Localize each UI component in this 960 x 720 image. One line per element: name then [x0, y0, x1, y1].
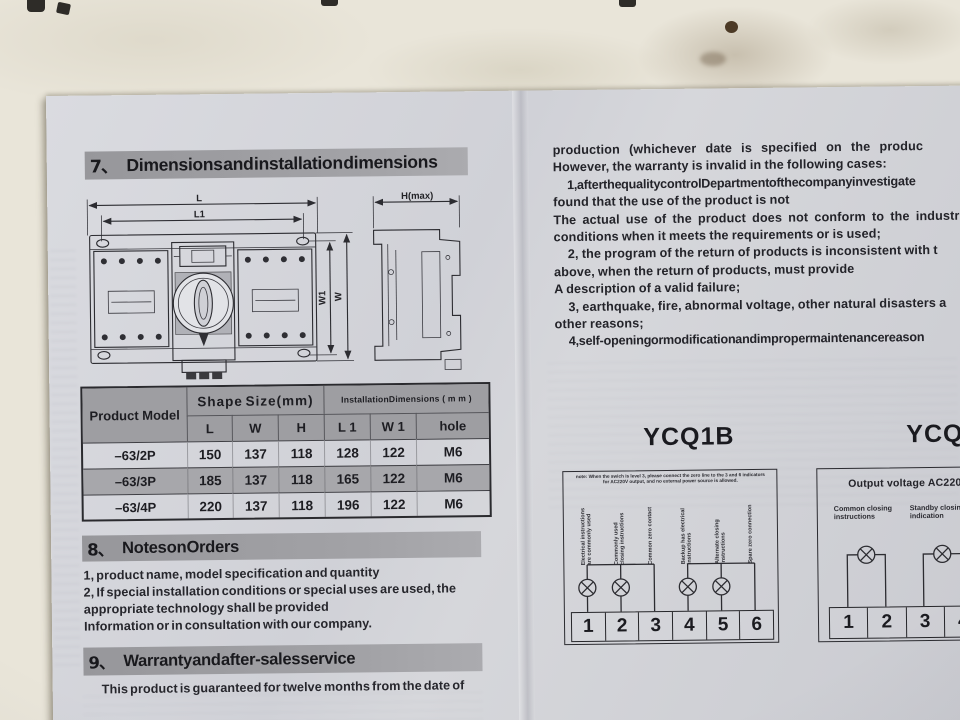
terminal-label: Electrical instructions are commonly use…	[580, 505, 594, 565]
terminal-number: 4	[672, 612, 706, 640]
table-cell: 185	[187, 467, 232, 494]
table-cell: 128	[324, 439, 370, 466]
table-cell: 122	[370, 439, 416, 466]
terminal-number: 5	[706, 611, 740, 639]
table-surface-stain	[700, 52, 726, 66]
terminal-number: 4	[944, 606, 960, 636]
manual-booklet: 7、 Dimensions and installation dimension…	[46, 85, 960, 720]
table-cell: 150	[187, 441, 232, 468]
section7-heading: 7、 Dimensions and installation dimension…	[85, 147, 468, 179]
terminal-number: 2	[605, 612, 639, 640]
terminal-number: 1	[572, 613, 605, 641]
section8-heading: 8、 Notes on Orders	[82, 531, 481, 562]
table-cell: 196	[325, 491, 371, 517]
manual-photo: 7、 Dimensions and installation dimension…	[0, 0, 960, 720]
terminal-number: 3	[905, 607, 944, 637]
left-page: 7、 Dimensions and installation dimension…	[46, 91, 523, 720]
table-surface-mark	[619, 0, 636, 7]
terminal-number: 1	[830, 608, 868, 638]
th-col-L: L	[187, 415, 232, 442]
ycq3b-wiring-diagram: Output voltage AC220V Common closing ins…	[816, 466, 960, 642]
side-view: H(max)	[373, 190, 461, 370]
lamp-icon	[579, 579, 596, 596]
terminal-label: Backup has electrical instructions	[680, 504, 694, 564]
table-cell: 137	[232, 440, 278, 467]
lamp-icon	[713, 578, 730, 595]
dim-label-W: W	[333, 292, 344, 301]
ycq3b-terminal-row: 1 2 3 4	[829, 605, 960, 639]
table-row-model: –63/3P	[83, 467, 187, 494]
warranty-paragraph: production (whichever date is specified …	[553, 137, 960, 351]
th-shape-size: Shape Size(mm)	[186, 386, 323, 416]
section8-text: 1, product name, model specification and…	[83, 563, 456, 635]
ycq1b-wiring-diagram: note: When the swich is level 3, please …	[562, 469, 779, 645]
dim-label-W1: W1	[317, 290, 328, 305]
table-row-model: –63/2P	[83, 441, 187, 468]
ycq1b-terminal-row: 1 2 3 4 5 6	[571, 610, 774, 642]
table-cell: 165	[324, 465, 370, 492]
table-cell: 122	[371, 491, 417, 517]
th-col-W: W	[232, 414, 278, 441]
terminal-number: 2	[867, 607, 906, 637]
dim-label-L1: L1	[194, 209, 206, 220]
ycq1b-title: YCQ1B	[624, 422, 754, 452]
table-cell: 118	[278, 440, 324, 467]
ycq3b-title: YCQ3B	[882, 419, 960, 450]
dim-label-L: L	[196, 193, 202, 204]
front-view	[90, 233, 318, 381]
section9-title: Warranty and after-sales service	[123, 649, 355, 671]
terminal-number: 6	[739, 611, 773, 639]
th-product-model: Product Model	[82, 387, 187, 442]
th-col-hole: hole	[416, 412, 489, 439]
table-row-model: –63/4P	[84, 493, 188, 519]
table-cell: 118	[279, 492, 325, 518]
table-cell: M6	[416, 464, 489, 491]
table-surface-mark	[27, 0, 45, 12]
lamp-icon	[858, 546, 875, 563]
terminal-label: Spare zero connection	[747, 503, 761, 563]
lamp-icon	[679, 578, 696, 595]
th-col-H: H	[278, 414, 324, 441]
table-cell: M6	[417, 490, 490, 516]
terminal-label: Common zero contact	[647, 505, 661, 565]
table-cell: 137	[233, 492, 279, 518]
lamp-icon	[934, 545, 951, 562]
terminal-label: Commonly used closing instructions	[613, 505, 627, 565]
table-cell: 122	[370, 465, 416, 492]
table-surface-stain	[725, 21, 738, 33]
table-cell: 118	[278, 466, 324, 493]
dimension-drawing: L L1	[77, 187, 471, 383]
section9-text: This product is guaranteed for twelve mo…	[102, 677, 465, 698]
table-surface-mark	[321, 0, 338, 6]
terminal-label: Alternate closing instructions	[714, 504, 728, 564]
dimension-drawing-svg: L L1	[77, 187, 471, 383]
dim-label-H: H(max)	[401, 191, 433, 202]
text-line: This product is guaranteed for twelve mo…	[102, 677, 465, 698]
table-cell: 137	[232, 466, 278, 493]
table-cell: 220	[188, 493, 233, 519]
section7-number: 7、	[90, 153, 118, 178]
section8-title: Notes on Orders	[122, 537, 239, 557]
table-cell: M6	[416, 438, 489, 465]
text-line: Information or in consultation with our …	[84, 614, 457, 635]
th-col-W1: W 1	[370, 413, 416, 440]
section9-heading: 9、 Warranty and after-sales service	[83, 643, 482, 676]
section7-title: Dimensions and installation dimensions	[126, 151, 437, 176]
section8-number: 8、	[87, 536, 113, 560]
dimensions-table: Product Model Shape Size(mm) Installatio…	[80, 382, 492, 522]
terminal-number: 3	[638, 612, 672, 640]
th-installation-dimensions: InstallationDimensions ( m m )	[323, 384, 488, 414]
th-col-L1: L 1	[324, 413, 370, 440]
section9-number: 9、	[88, 649, 114, 673]
table-surface-mark	[56, 2, 71, 15]
lamp-icon	[612, 579, 629, 596]
